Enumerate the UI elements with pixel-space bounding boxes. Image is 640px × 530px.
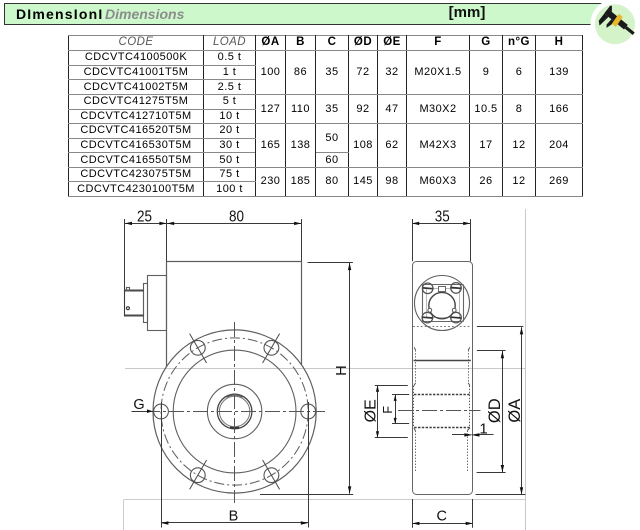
svg-text:C: C xyxy=(437,508,447,524)
svg-text:ØA: ØA xyxy=(506,399,524,423)
svg-text:80: 80 xyxy=(229,208,244,225)
svg-text:ØE: ØE xyxy=(362,399,379,422)
svg-text:F: F xyxy=(381,406,395,414)
svg-text:H: H xyxy=(334,365,350,375)
svg-text:G: G xyxy=(133,397,144,413)
svg-text:35: 35 xyxy=(435,208,450,225)
svg-text:ØD: ØD xyxy=(486,398,504,423)
svg-text:25: 25 xyxy=(137,208,152,225)
svg-text:B: B xyxy=(229,508,239,524)
